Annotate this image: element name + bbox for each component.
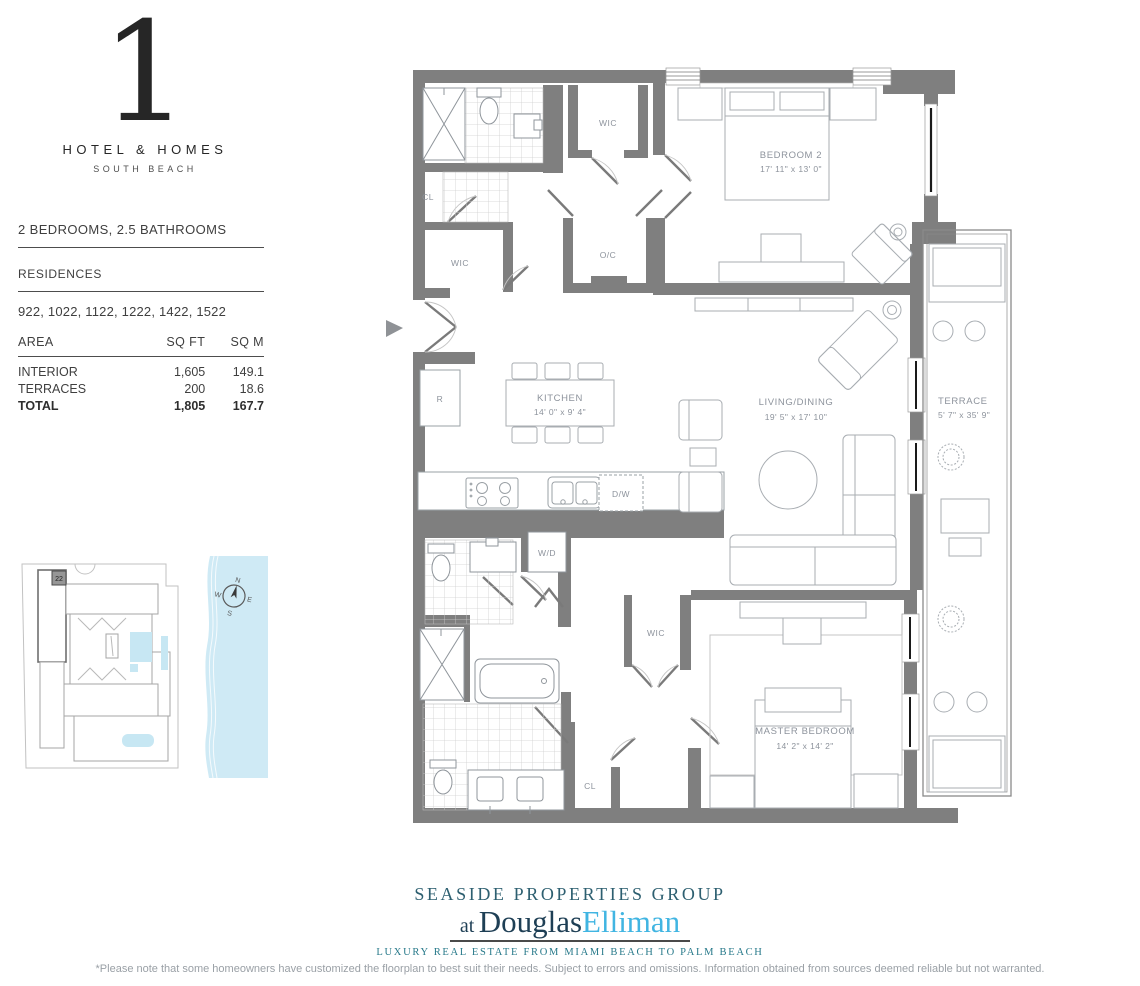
sqm-header: SQ M [205, 335, 264, 357]
oc-label: O/C [600, 250, 617, 260]
brand-tagline: LUXURY REAL ESTATE FROM MIAMI BEACH TO P… [0, 947, 1140, 958]
disclaimer-text: *Please note that some homeowners have c… [0, 963, 1140, 975]
kitchen-dims: 14' 0" x 9' 4" [534, 407, 586, 417]
brand-douglas: Douglas [479, 904, 582, 939]
area-table: AREA SQ FT SQ M INTERIOR 1,605 149.1 TER… [18, 335, 264, 413]
brand-at: at [460, 915, 474, 937]
row-sqm: 167.7 [205, 396, 264, 413]
terrace-label: TERRACE [938, 396, 988, 407]
site-plan: 22 [18, 556, 190, 781]
entry-arrow-icon [386, 320, 403, 337]
living-dining-label: LIVING/DINING [759, 397, 834, 408]
refrigerator-label: R [437, 394, 444, 404]
wic-label: WIC [451, 258, 469, 268]
logo-brand-text: HOTEL & HOMES [22, 142, 268, 157]
terrace-furniture [929, 244, 1005, 792]
living-dining-dims: 19' 5" x 17' 10" [765, 412, 827, 422]
table-row: TERRACES 200 18.6 [18, 379, 264, 396]
divider [18, 247, 264, 248]
row-label: INTERIOR [18, 357, 137, 380]
douglas-elliman-logo: at DouglasElliman [450, 906, 690, 942]
beach-water-strip: N E S W [198, 556, 268, 778]
terrace-dims: 5' 7" x 35' 9" [938, 410, 990, 420]
dishwasher-label: D/W [612, 489, 630, 499]
bedroom2-label: BEDROOM 2 [760, 150, 822, 161]
row-label: TOTAL [18, 396, 137, 413]
logo-numeral: 1 [22, 4, 268, 142]
row-sqft: 200 [137, 379, 205, 396]
sqft-header: SQ FT [137, 335, 205, 357]
wic-label: WIC [647, 628, 665, 638]
cl-label: CL [584, 781, 596, 791]
unit-floor-plan: BEDROOM 2 17' 11" x 13' 0" KITCHEN 14' 0… [378, 58, 1038, 848]
hotel-logo: 1 HOTEL & HOMES SOUTH BEACH [22, 0, 268, 174]
divider [18, 291, 264, 292]
row-label: TERRACES [18, 379, 137, 396]
master-bedroom-furniture [710, 602, 902, 808]
master-bath-fixtures [420, 532, 566, 814]
building-footprint [38, 570, 170, 761]
area-header: AREA [18, 335, 137, 357]
brand-elliman: Elliman [582, 904, 680, 939]
residences-label: RESIDENCES [18, 267, 264, 281]
master-bedroom-dims: 14' 2" x 14' 2" [776, 741, 833, 751]
washer-dryer-label: W/D [538, 548, 556, 558]
table-row-total: TOTAL 1,805 167.7 [18, 396, 264, 413]
kitchen-label: KITCHEN [537, 393, 583, 404]
living-dining-furniture [679, 298, 901, 585]
row-sqm: 149.1 [205, 357, 264, 380]
wic-label: WIC [599, 118, 617, 128]
master-bedroom-label: MASTER BEDROOM [755, 726, 855, 737]
table-row: INTERIOR 1,605 149.1 [18, 357, 264, 380]
logo-location-text: SOUTH BEACH [22, 164, 268, 174]
floorplan-brochure-page: 1 HOTEL & HOMES SOUTH BEACH 2 BEDROOMS, … [0, 0, 1140, 986]
brokerage-group-name: SEASIDE PROPERTIES GROUP [0, 884, 1140, 905]
row-sqm: 18.6 [205, 379, 264, 396]
bed-bath-headline: 2 BEDROOMS, 2.5 BATHROOMS [18, 222, 264, 237]
residences-list: 922, 1022, 1122, 1222, 1422, 1522 [18, 304, 264, 319]
broker-branding: SEASIDE PROPERTIES GROUP at DouglasEllim… [0, 884, 1140, 958]
row-sqft: 1,805 [137, 396, 205, 413]
row-sqft: 1,605 [137, 357, 205, 380]
svg-text:22: 22 [55, 576, 63, 583]
unit-info-panel: 2 BEDROOMS, 2.5 BATHROOMS RESIDENCES 922… [18, 222, 264, 413]
water [205, 556, 268, 778]
guest-bathroom [423, 88, 543, 222]
bedroom2-dims: 17' 11" x 13' 0" [760, 164, 822, 174]
bedroom2-furniture [678, 88, 913, 285]
cl-label: CL [422, 192, 434, 202]
unit-location-marker: 22 [52, 571, 66, 585]
